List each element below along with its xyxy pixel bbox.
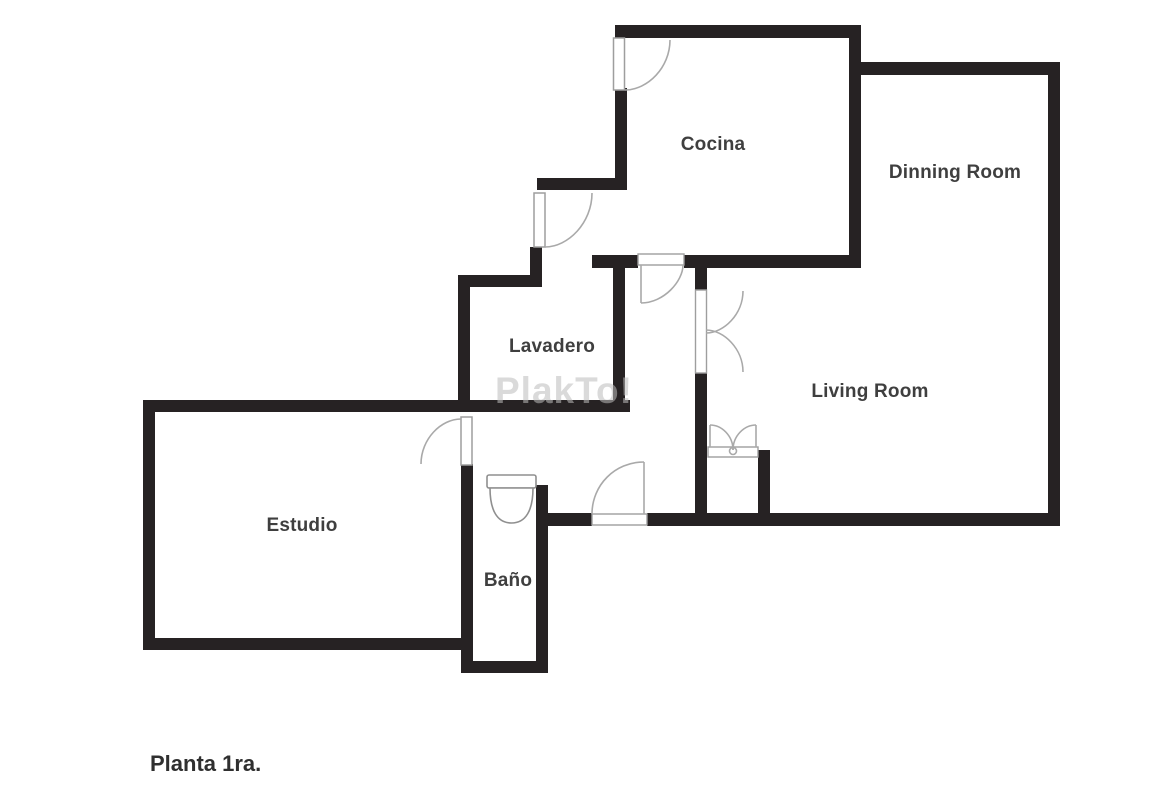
room-label-living-room: Living Room bbox=[790, 381, 950, 403]
living-room-double-door-icon bbox=[696, 290, 744, 373]
floor-plan-drawing bbox=[0, 0, 1170, 785]
room-label-cocina: Cocina bbox=[663, 134, 763, 156]
room-label-lavadero: Lavadero bbox=[492, 336, 612, 358]
room-label-estudio: Estudio bbox=[242, 515, 362, 537]
plan-title: Planta 1ra. bbox=[150, 751, 261, 777]
toilet-icon bbox=[487, 475, 536, 523]
room-label-bano: Baño bbox=[458, 570, 558, 592]
cocina-entry-door-icon bbox=[614, 38, 671, 90]
closet-double-door-icon bbox=[708, 425, 758, 457]
vestibule-door-icon bbox=[534, 193, 592, 247]
estudio-door-icon bbox=[421, 417, 472, 465]
main-entrance-door-icon bbox=[592, 462, 647, 525]
room-label-dinning-room: Dinning Room bbox=[875, 162, 1035, 184]
cocina-hall-door-icon bbox=[638, 254, 684, 303]
floor-plan: PlakTo! Cocina Dinning Room Lavadero Liv… bbox=[0, 0, 1170, 785]
